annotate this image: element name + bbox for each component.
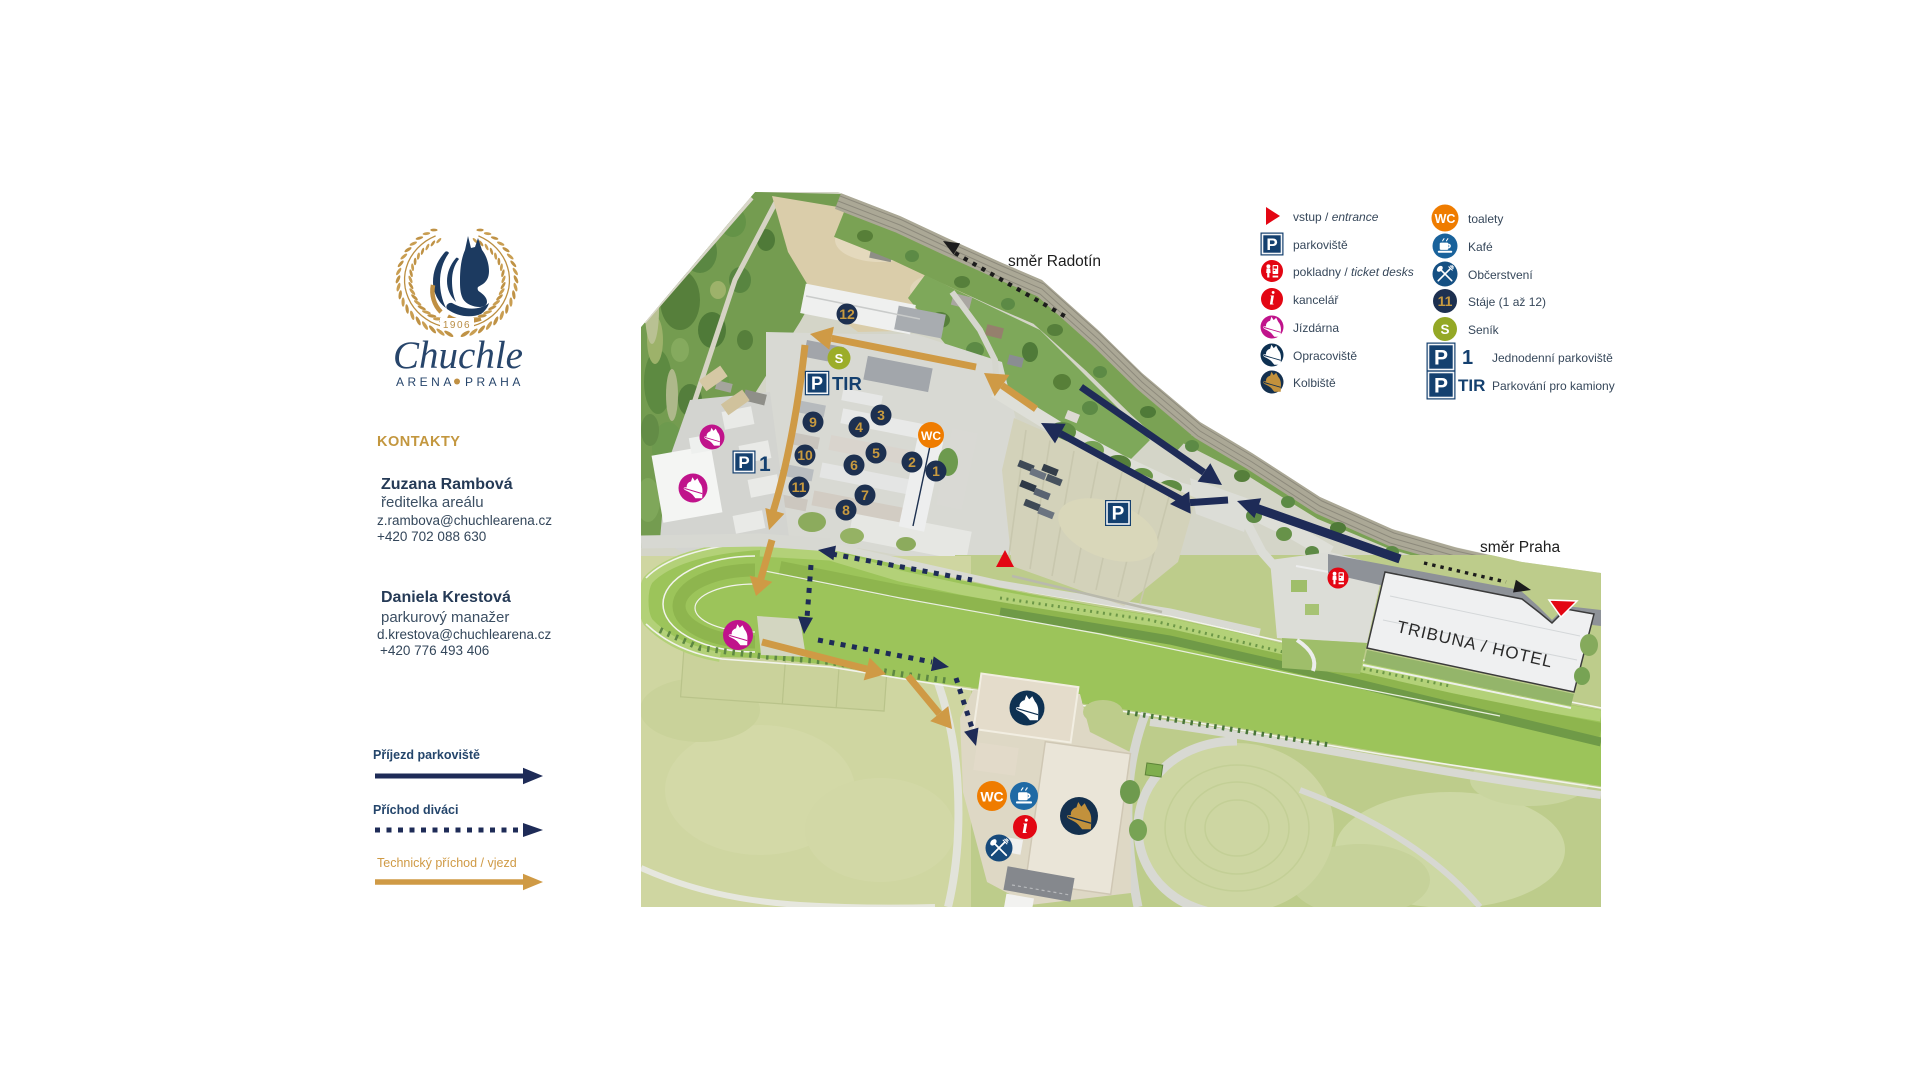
svg-text:9: 9 (809, 414, 817, 430)
svg-text:i: i (1022, 814, 1028, 838)
svg-text:TIR: TIR (832, 373, 862, 394)
svg-text:TIR: TIR (1458, 376, 1485, 395)
svg-text:d.krestova@chuchlearena.cz: d.krestova@chuchlearena.cz (377, 627, 552, 642)
svg-text:P: P (1434, 347, 1448, 370)
svg-text:KONTAKTY: KONTAKTY (377, 434, 460, 450)
svg-text:z.rambova@chuchlearena.cz: z.rambova@chuchlearena.cz (377, 513, 552, 528)
svg-text:1: 1 (932, 463, 940, 479)
svg-text:7: 7 (861, 487, 869, 503)
svg-text:toalety: toalety (1468, 212, 1503, 226)
svg-text:pokladny / ticket desks: pokladny / ticket desks (1293, 265, 1414, 279)
svg-text:8: 8 (842, 502, 850, 518)
svg-text:3: 3 (877, 407, 885, 423)
svg-text:4: 4 (855, 419, 863, 435)
svg-text:Příchod diváci: Příchod diváci (373, 803, 458, 817)
svg-text:P: P (1266, 235, 1277, 254)
svg-text:parkoviště: parkoviště (1293, 238, 1348, 252)
svg-text:parkurový manažer: parkurový manažer (381, 609, 509, 626)
svg-text:6: 6 (850, 457, 858, 473)
svg-text:P: P (1434, 375, 1448, 398)
svg-text:1906: 1906 (443, 320, 471, 331)
svg-text:Daniela Krestová: Daniela Krestová (381, 589, 511, 606)
svg-text:Seník: Seník (1468, 323, 1500, 337)
svg-text:1: 1 (1462, 347, 1473, 369)
svg-text:S: S (1440, 322, 1449, 337)
svg-text:Zuzana Rambová: Zuzana Rambová (381, 476, 513, 493)
svg-text:Technický příchod / vjezd: Technický příchod / vjezd (377, 856, 517, 870)
svg-text:12: 12 (839, 306, 855, 322)
svg-text:Jednodenní parkoviště: Jednodenní parkoviště (1492, 351, 1613, 365)
svg-text:směr Praha: směr Praha (1480, 539, 1560, 556)
svg-text:Příjezd parkoviště: Příjezd parkoviště (373, 748, 480, 762)
svg-text:P: P (738, 453, 749, 472)
svg-text:Kafé: Kafé (1468, 240, 1493, 254)
svg-text:WC: WC (980, 789, 1003, 805)
svg-text:P: P (1112, 504, 1125, 525)
svg-text:Opracoviště: Opracoviště (1293, 349, 1357, 363)
svg-text:Občerstvení: Občerstvení (1468, 268, 1533, 282)
svg-text:1: 1 (759, 453, 771, 476)
svg-text:PRAHA: PRAHA (465, 375, 524, 389)
svg-text:S: S (835, 351, 844, 366)
svg-text:kancelář: kancelář (1293, 293, 1339, 307)
svg-text:Stáje (1 až 12): Stáje (1 až 12) (1468, 295, 1546, 309)
svg-text:11: 11 (1438, 293, 1453, 309)
svg-text:WC: WC (921, 429, 941, 443)
svg-text:P: P (811, 373, 823, 393)
svg-text:Parkování pro kamiony: Parkování pro kamiony (1492, 379, 1615, 393)
svg-text:5: 5 (872, 445, 880, 461)
svg-text:ředitelka areálu: ředitelka areálu (381, 494, 484, 511)
svg-text:Chuchle: Chuchle (393, 334, 523, 377)
svg-text:10: 10 (797, 447, 813, 463)
svg-text:2: 2 (908, 454, 916, 470)
svg-text:ARENA: ARENA (396, 375, 455, 389)
svg-text:+420 702 088 630: +420 702 088 630 (377, 529, 486, 544)
svg-text:Kolbiště: Kolbiště (1293, 376, 1336, 390)
svg-text:vstup / entrance: vstup / entrance (1293, 210, 1379, 224)
svg-text:+420 776 493 406: +420 776 493 406 (380, 643, 489, 658)
svg-text:i: i (1269, 289, 1275, 310)
svg-text:Jízdárna: Jízdárna (1293, 321, 1339, 335)
svg-text:směr Radotín: směr Radotín (1008, 253, 1101, 270)
svg-text:11: 11 (792, 479, 807, 495)
svg-text:WC: WC (1435, 212, 1456, 226)
